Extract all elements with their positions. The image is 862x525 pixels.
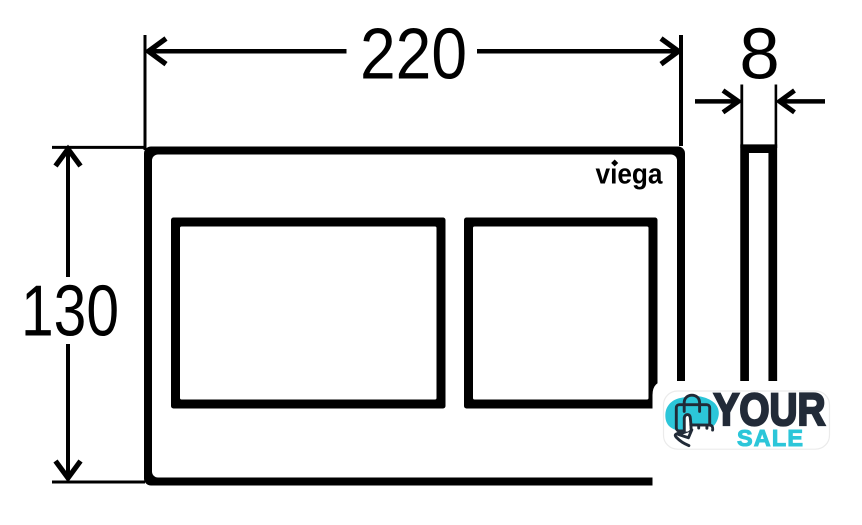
svg-text:SALE: SALE bbox=[737, 425, 803, 451]
svg-text:8: 8 bbox=[739, 14, 779, 95]
svg-text:220: 220 bbox=[360, 14, 467, 95]
svg-text:vıega: vıega bbox=[596, 159, 663, 191]
svg-text:130: 130 bbox=[21, 271, 119, 352]
